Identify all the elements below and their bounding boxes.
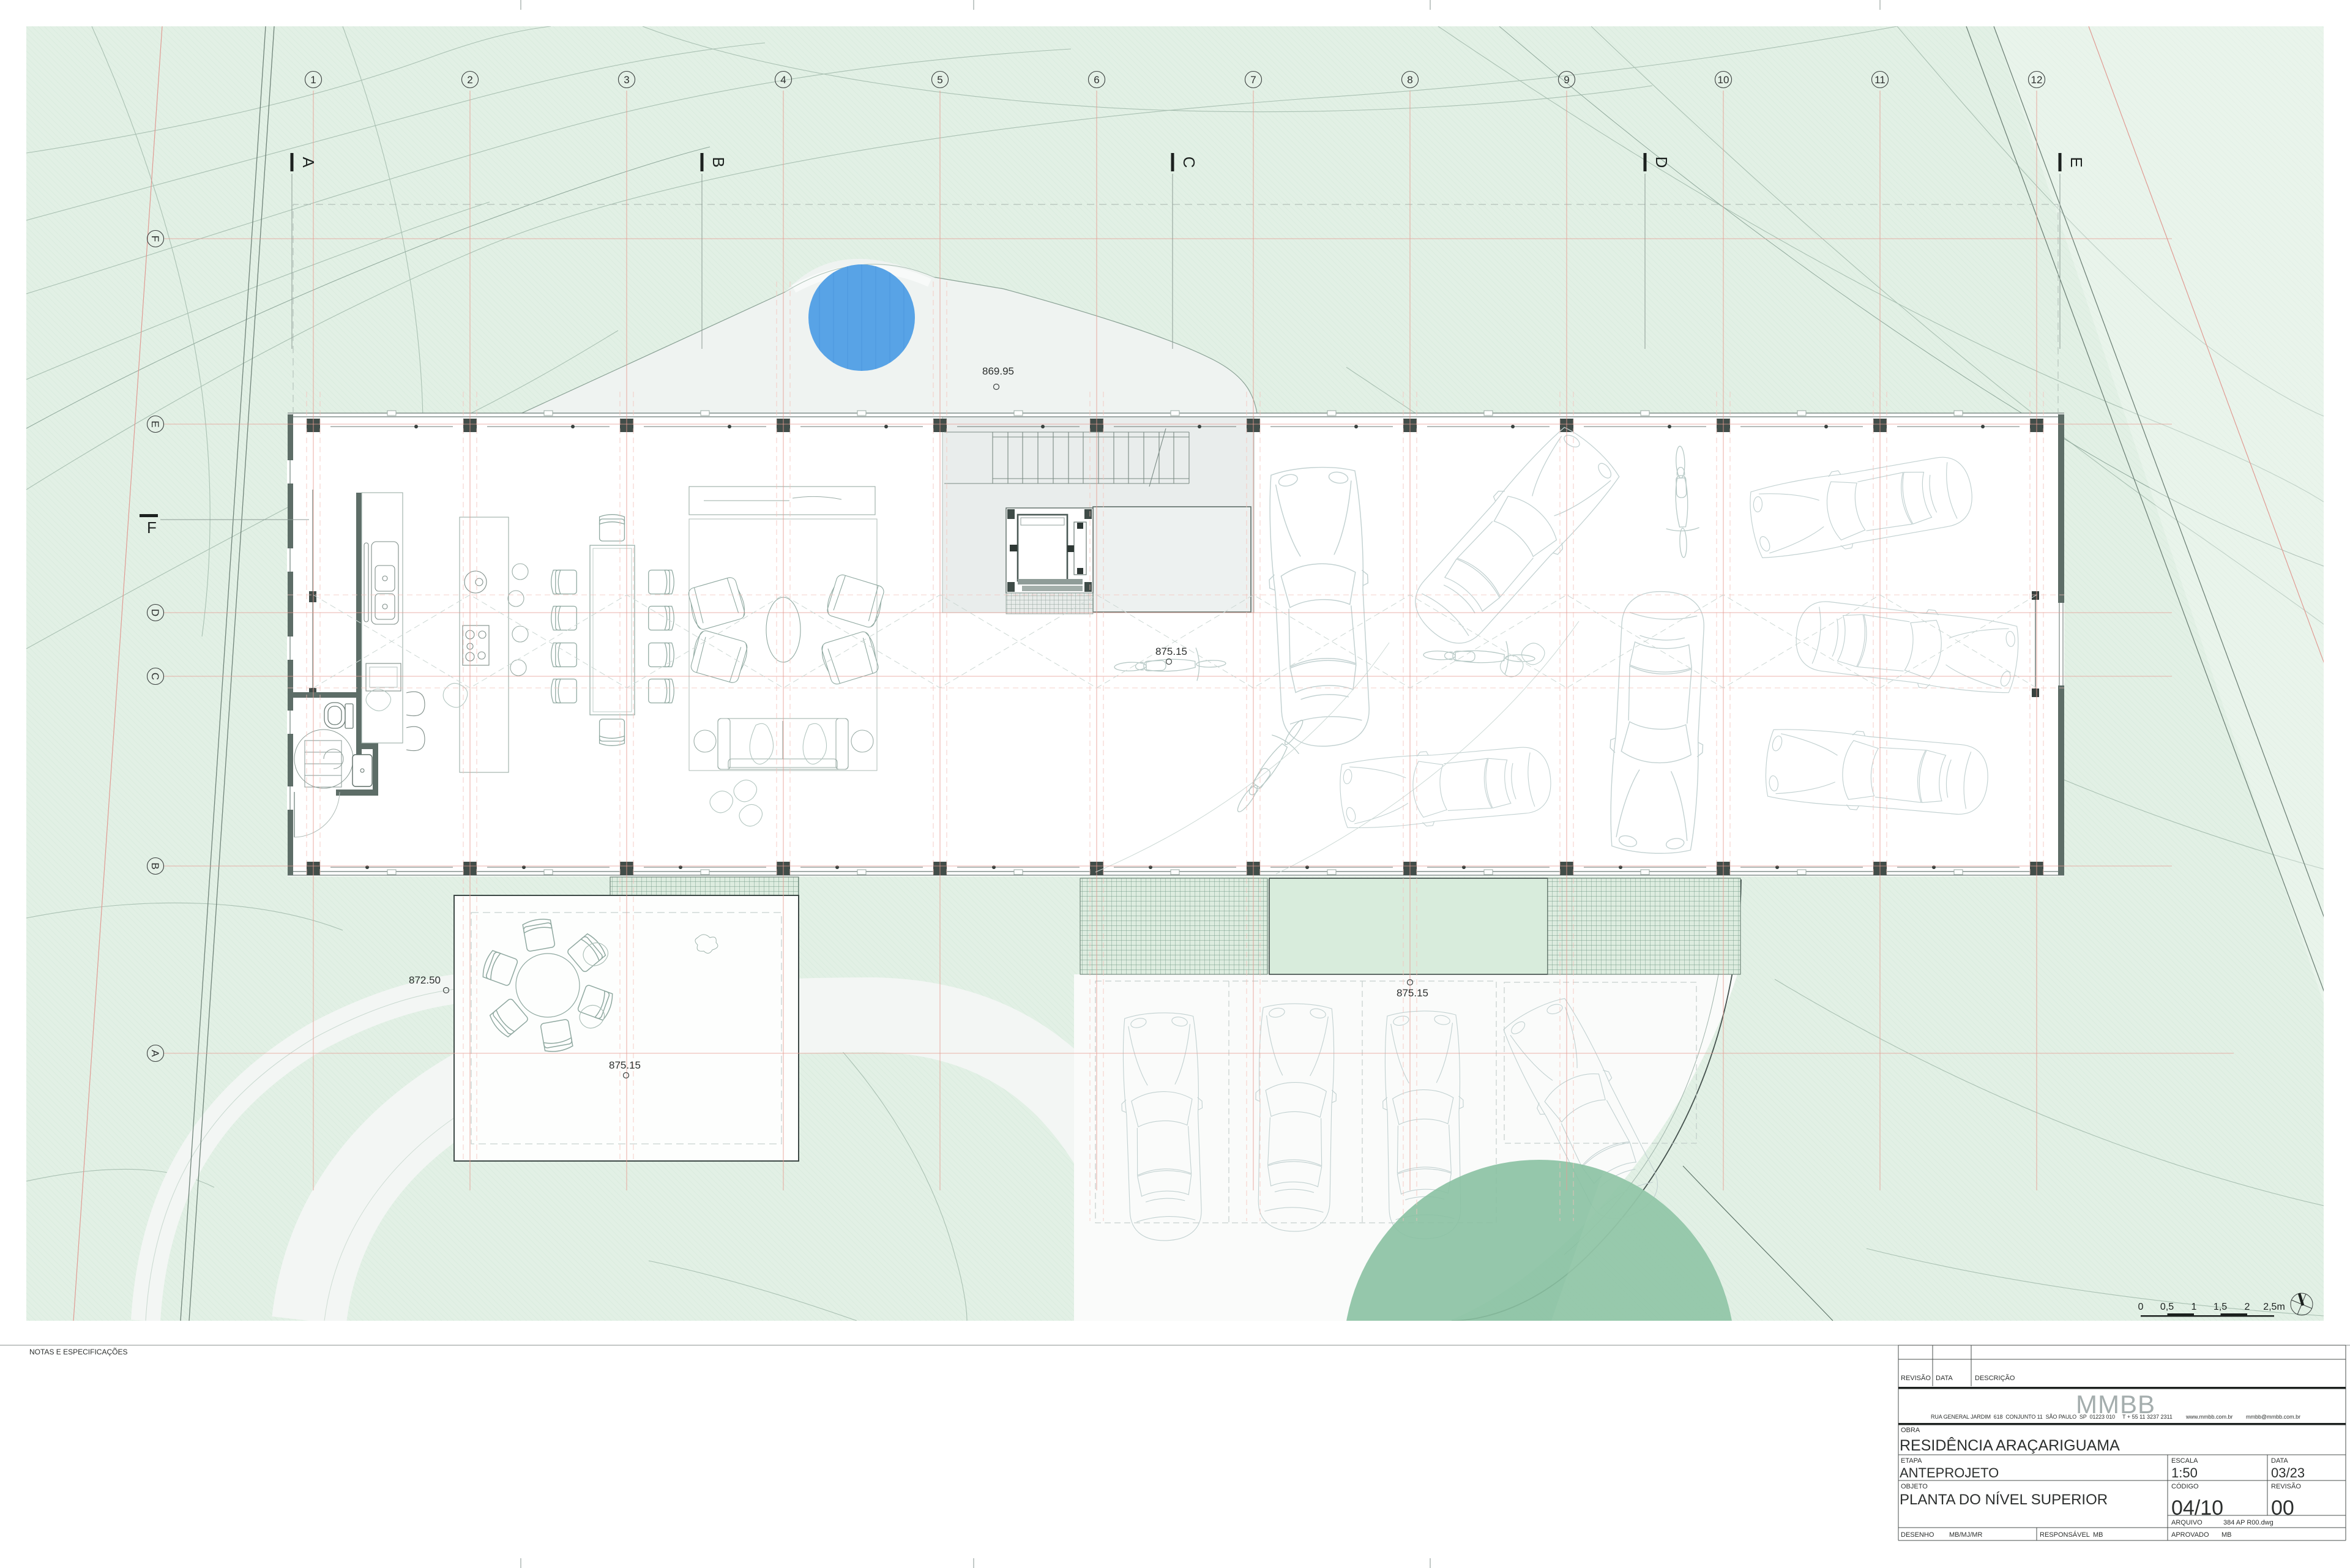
svg-text:1: 1	[310, 74, 316, 86]
svg-text:2: 2	[467, 74, 472, 86]
svg-text:1: 1	[2191, 1302, 2197, 1312]
svg-text:DATA: DATA	[2271, 1457, 2288, 1465]
svg-text:869.95: 869.95	[982, 365, 1014, 377]
svg-text:6: 6	[1094, 74, 1099, 86]
svg-text:11: 11	[1874, 74, 1886, 86]
svg-text:A: A	[299, 157, 318, 168]
svg-text:OBRA: OBRA	[1901, 1427, 1920, 1434]
svg-text:4: 4	[780, 74, 786, 86]
svg-text:ETAPA: ETAPA	[1901, 1457, 1922, 1465]
svg-text:ESCALA: ESCALA	[2171, 1457, 2198, 1465]
svg-text:10: 10	[1718, 74, 1729, 86]
svg-text:8: 8	[1407, 74, 1412, 86]
svg-text:2: 2	[2245, 1302, 2250, 1312]
svg-text:mmbb@mmbb.com.br: mmbb@mmbb.com.br	[2246, 1414, 2300, 1420]
svg-text:A: A	[149, 1050, 161, 1057]
svg-text:875.15: 875.15	[1397, 987, 1428, 999]
svg-text:875.15: 875.15	[1155, 646, 1187, 657]
svg-text:12: 12	[2031, 74, 2043, 86]
svg-text:CÓDIGO: CÓDIGO	[2171, 1482, 2199, 1490]
svg-text:04/10: 04/10	[2171, 1496, 2223, 1520]
svg-text:REVISÃO: REVISÃO	[2271, 1482, 2301, 1490]
svg-text:1,5: 1,5	[2214, 1302, 2227, 1312]
svg-text:B: B	[709, 157, 728, 167]
svg-text:PLANTA DO NÍVEL SUPERIOR: PLANTA DO NÍVEL SUPERIOR	[1900, 1491, 2108, 1508]
svg-text:872.50: 872.50	[409, 974, 441, 986]
svg-text:D: D	[1652, 157, 1671, 168]
svg-text:ANTEPROJETO: ANTEPROJETO	[1900, 1465, 1999, 1480]
svg-text:MB: MB	[2221, 1531, 2232, 1539]
svg-text:1:50: 1:50	[2171, 1465, 2198, 1480]
svg-text:03/23: 03/23	[2271, 1465, 2305, 1480]
svg-text:RUA GENERAL JARDIM 618 CONJU: RUA GENERAL JARDIM 618 CONJUNTO 11 SÃO P…	[1931, 1414, 2115, 1420]
svg-text:REVISÃO: REVISÃO	[1901, 1374, 1931, 1382]
svg-text:0,5: 0,5	[2160, 1302, 2174, 1312]
svg-text:T + 55 11 3237 2311: T + 55 11 3237 2311	[2122, 1414, 2173, 1420]
svg-text:MB: MB	[2093, 1531, 2103, 1539]
svg-text:OBJETO: OBJETO	[1901, 1483, 1928, 1490]
svg-text:3: 3	[624, 74, 629, 86]
svg-text:7: 7	[1250, 74, 1256, 86]
svg-text:D: D	[149, 609, 161, 616]
svg-text:www.mmbb.com.br: www.mmbb.com.br	[2185, 1414, 2233, 1420]
svg-text:APROVADO: APROVADO	[2171, 1531, 2209, 1539]
svg-text:F: F	[149, 236, 161, 242]
svg-text:RESPONSÁVEL: RESPONSÁVEL	[2040, 1531, 2090, 1539]
svg-text:DATA: DATA	[1936, 1375, 1953, 1382]
svg-text:E: E	[149, 420, 161, 427]
svg-text:C: C	[149, 673, 161, 680]
svg-text:RESIDÊNCIA ARAÇARIGUAMA: RESIDÊNCIA ARAÇARIGUAMA	[1900, 1436, 2120, 1454]
svg-text:9: 9	[1564, 74, 1569, 86]
svg-text:DESENHO: DESENHO	[1901, 1531, 1934, 1539]
svg-text:ARQUIVO: ARQUIVO	[2171, 1519, 2203, 1526]
svg-text:00: 00	[2271, 1496, 2294, 1520]
svg-text:0: 0	[2138, 1302, 2144, 1312]
svg-text:C: C	[1180, 157, 1198, 168]
svg-text:E: E	[2067, 157, 2086, 167]
svg-text:F: F	[147, 518, 157, 537]
svg-text:875.15: 875.15	[609, 1059, 641, 1071]
svg-text:B: B	[149, 862, 161, 869]
svg-text:5: 5	[937, 74, 942, 86]
svg-text:MB/MJ/MR: MB/MJ/MR	[1949, 1531, 1982, 1539]
svg-text:NOTAS E ESPECIFICAÇÕES: NOTAS E ESPECIFICAÇÕES	[29, 1347, 127, 1356]
svg-text:384 AP R00.dwg: 384 AP R00.dwg	[2223, 1519, 2274, 1526]
svg-text:2,5m: 2,5m	[2263, 1302, 2285, 1312]
svg-text:DESCRIÇÃO: DESCRIÇÃO	[1975, 1374, 2015, 1382]
